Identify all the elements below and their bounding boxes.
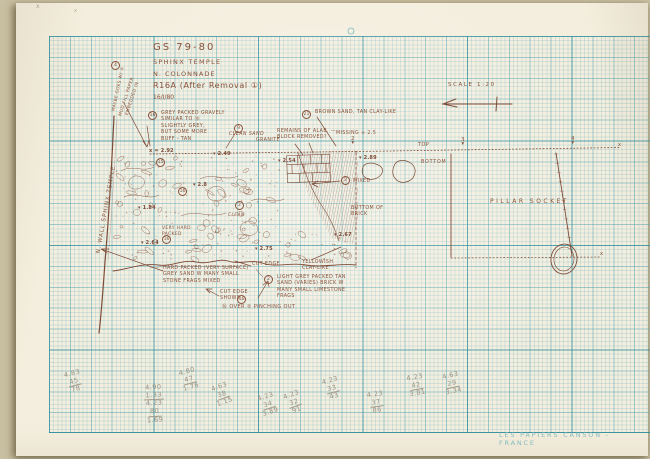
wall-label: N. WALL SPHINX TEMPLE	[93, 150, 121, 269]
cut-edge-note: CUT EDGE	[252, 262, 280, 268]
circled-layer-number: 2	[235, 201, 244, 210]
elevation-marker: ▾ 2.67	[334, 232, 352, 238]
top-label: TOP	[418, 142, 429, 149]
pencil-calculation: 4.63293.34	[440, 370, 465, 398]
title-site: SPHINX TEMPLE	[153, 58, 262, 66]
pencil-calculation: 4.63381.15	[209, 380, 236, 410]
elevation-marker: ▾ 2.75	[255, 246, 273, 252]
datum-point-2: 2 ▾	[349, 137, 357, 145]
bottom-label: BOTTOM	[421, 160, 446, 166]
bottom-of-brick-note: BOTTOM OF BRICK	[351, 206, 383, 219]
pencil-calculation: 4.80471.76	[176, 366, 202, 394]
pencil-x-1: x	[36, 3, 40, 11]
scanned-field-drawing: GS 79-80 SPHINX TEMPLE N. COLONNADE R16A…	[0, 0, 650, 459]
pencil-calculation: 4.901.334.23801.69	[143, 383, 166, 424]
pencil-calculation: 4.23343.89	[255, 390, 282, 419]
pillar-socket-label: PILLAR SOCKET	[490, 198, 569, 206]
elevation-marker: ▾ 1.84	[138, 205, 156, 211]
socket-x-mark: x	[600, 251, 603, 258]
elevation-marker: ▾ 2.89	[359, 155, 377, 161]
title-date: 16/I/80	[153, 94, 262, 101]
layer2-note: LIGHT GREY PACKED TAN SAND (VARIES) BRIC…	[277, 275, 346, 301]
survey-x-right: x	[618, 142, 621, 149]
yellowish-note: YELLOWISH CLAY-LIKE	[302, 260, 333, 273]
circled-layer-number: 21	[302, 110, 311, 119]
title-block: GS 79-80 SPHINX TEMPLE N. COLONNADE R16A…	[153, 42, 262, 101]
pencil-x-2: x	[74, 8, 77, 15]
pinching-note: ⑯ OVER ② PINCHING OUT	[222, 304, 295, 311]
elevation-marker: x = 2.92	[149, 148, 174, 154]
scale-note: SCALE 1:20	[448, 82, 496, 88]
pencil-calculation: 4.233786	[364, 390, 388, 417]
clean-note: CLEAN	[228, 213, 245, 219]
circled-layer-number: 2	[264, 275, 273, 284]
pencil-calculation: 4.233291	[281, 388, 308, 418]
elevation-marker: ▾ 2.64	[141, 240, 159, 246]
circled-layer-number: 9	[234, 124, 243, 133]
layer21-note: BROWN SAND, TAN CLAY-LIKE	[315, 110, 396, 116]
pencil-calculation: 4.834578	[61, 368, 87, 396]
title-locus: R16A (After Removal ①)	[153, 81, 262, 90]
paper-brand-watermark: LES PAPIERS CANSON - FRANCE	[499, 431, 650, 447]
datum-point-3: 3 ▾	[459, 138, 467, 146]
elevation-marker: ▾ 2.54	[278, 158, 296, 164]
layer16-note: GREY PACKED GRAVELY SIMILAR TO ⑮ SLIGHTL…	[161, 111, 225, 143]
mixed-note: MIXED	[353, 179, 371, 185]
circled-layer-number: 2	[341, 176, 350, 185]
hard-packed-note: HARD PACKED (VERY SURFACE) GREY SAND W M…	[163, 266, 249, 285]
datum-point-4: 4 ▾	[569, 137, 577, 145]
pencil-calculation: 4.23423.81	[404, 372, 428, 399]
annotation-layer: GS 79-80 SPHINX TEMPLE N. COLONNADE R16A…	[0, 0, 650, 459]
circled-layer-number: 4	[111, 61, 120, 70]
circled-layer-number: 16	[162, 235, 171, 244]
remains-note: REMAINS OF ALAB. — BLOCK REMOVED?	[277, 129, 336, 142]
circled-layer-number: 15	[156, 158, 165, 167]
title-project: GS 79-80	[153, 42, 262, 53]
elevation-marker: ▾ 2.49	[213, 151, 231, 157]
circled-layer-number: 16	[178, 187, 187, 196]
elevation-marker: ▾ 2.8	[193, 182, 207, 188]
title-area: N. COLONNADE	[153, 70, 262, 78]
pencil-calculation: 4.233343	[319, 375, 345, 403]
circled-layer-number: 16	[148, 111, 157, 120]
circled-layer-number: 16	[237, 295, 246, 304]
